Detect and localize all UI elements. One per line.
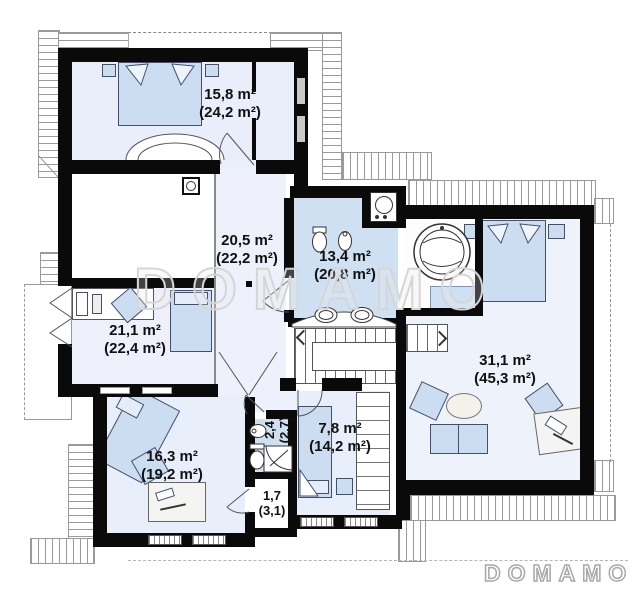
chimney-vent-icon [186,181,196,191]
double-bed-icon [482,220,546,302]
wall [280,378,296,391]
nightstand-icon [336,478,353,495]
room-label-bedroom-4: 7,8 m² (14,2 m²) [280,420,400,456]
floor-plan: 15,8 m² (24,2 m²) 20,5 m² (22,2 m²) 13,4… [0,0,640,597]
washer-knob-icon [383,215,387,219]
nightstand-icon [548,224,565,239]
room-label-bedroom-3: 16,3 m² (19,2 m²) [112,448,232,484]
wall [256,160,308,174]
washer-knob-icon [375,215,379,219]
wall [245,410,253,419]
roof-hatch [594,460,614,492]
room-total: (20,8 m²) [285,266,405,284]
partition [214,174,216,384]
wall [475,219,483,313]
wall [290,186,366,198]
room-area: 16,3 m² [112,448,232,466]
wall [58,48,308,62]
room-label-bedroom-1: 15,8 m² (24,2 m²) [160,86,300,122]
window [344,517,378,527]
desk-chair-icon [76,292,88,316]
room-label-bathroom: 13,4 m² (20,8 m²) [285,248,405,284]
roof-hatch [398,520,426,562]
washer-drum-icon [375,196,393,214]
wall [58,160,220,174]
roof-hatch [594,198,614,224]
wall [398,205,594,219]
roof-edge-dashed [610,224,611,462]
wall-dot [246,281,252,287]
partition [252,118,256,160]
room-area: 7,8 m² [280,420,400,438]
room-label-master: 31,1 m² (45,3 m²) [445,352,565,388]
sofa-icon [430,424,488,454]
room-total: (22,4 m²) [75,340,195,358]
room-area: 21,1 m² [75,322,195,340]
room-area: 2,4 [262,400,277,460]
room-area: 1,7 [242,488,302,503]
room-label-bedroom-2: 21,1 m² (22,4 m²) [75,322,195,358]
sofa-cushion-divider [458,425,459,453]
wall [58,174,72,286]
room-area: 15,8 m² [160,86,300,104]
wall [58,384,218,397]
wall [396,480,594,495]
pillow-icon [301,480,329,494]
wall [322,378,362,391]
roof-hatch [30,538,94,564]
window [142,387,172,394]
roof-hatch [342,152,432,180]
room-total: (3,1) [242,503,302,518]
stairs-landing [312,342,398,371]
roof-hatch [38,30,60,178]
nightstand-icon [205,64,219,77]
wall [58,344,72,388]
wall [93,397,107,547]
room-label-closet: 1,7 (3,1) [242,488,302,518]
pillow-icon [174,292,208,305]
room-total: (45,3 m²) [445,370,565,388]
nightstand-icon [102,64,116,77]
wall [72,278,216,288]
window [148,535,182,545]
room-total: (19,2 m²) [112,466,232,484]
wall [288,318,398,327]
roof-hatch [322,32,342,180]
wall [398,308,483,316]
coffee-table-icon [446,393,482,419]
window [192,535,226,545]
roof-edge-dashed [128,560,628,561]
watermark-logo: DOMAMO [484,560,633,587]
roof-hatch [410,495,616,521]
room-total: (14,2 m²) [280,438,400,456]
desk-icon [148,482,206,522]
desk-icon [92,294,102,314]
roof-hatch [408,180,596,207]
wall [396,495,410,520]
wall [58,48,72,178]
wall [580,205,594,495]
window [300,517,334,527]
room-area: 13,4 m² [285,248,405,266]
window [100,387,130,394]
room-total: (24,2 m²) [160,104,300,122]
room-area: 31,1 m² [445,352,565,370]
